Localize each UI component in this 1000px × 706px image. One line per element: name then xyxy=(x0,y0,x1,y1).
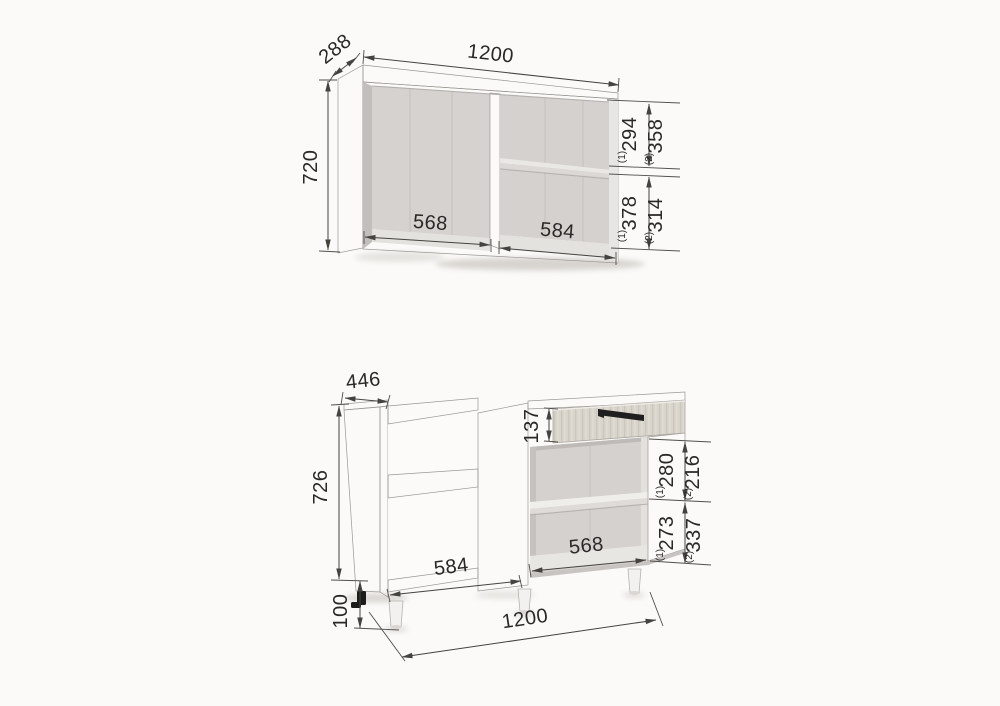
base-depth-value: 446 xyxy=(345,368,382,394)
base-lower-option2-value: 337 xyxy=(683,518,705,553)
wall-left-opening-value: 568 xyxy=(412,211,448,235)
base-drawer-height-value: 137 xyxy=(521,409,543,444)
base-legs-height-value: 100 xyxy=(330,594,352,629)
base-upper-option1-value: 280 xyxy=(656,453,678,488)
wall-upper-option2-value: 358 xyxy=(645,119,667,154)
wall-upper-option1-value: 294 xyxy=(619,117,641,152)
cabinet-leg xyxy=(389,601,403,629)
base-left-opening-value: 584 xyxy=(433,554,470,580)
wall-upper-option2-mark: (2) xyxy=(644,153,655,165)
drawing-canvas: 288 1200 720 568 584 xyxy=(0,0,1000,706)
wall-height-value: 720 xyxy=(300,150,322,185)
base-height-value: 726 xyxy=(310,470,332,505)
wall-lower-option1-value: 378 xyxy=(619,196,641,231)
base-right-opening-value: 568 xyxy=(568,533,605,559)
wall-right-opening-value: 584 xyxy=(539,219,576,244)
wall-lower-option2-value: 314 xyxy=(645,198,667,233)
base-upper-option2-value: 216 xyxy=(682,455,704,490)
wall-upper-option1-mark: (1) xyxy=(617,151,628,163)
wall-inner-left-wall xyxy=(363,82,372,249)
wall-lower-option1-mark: (1) xyxy=(617,230,628,242)
base-lower-option1-value: 273 xyxy=(656,516,678,551)
wall-lower-option2-mark: (2) xyxy=(644,232,655,244)
cabinet-leg xyxy=(628,569,641,595)
base-compartment-right-wall xyxy=(641,437,648,547)
furniture-dimension-drawing: 288 1200 720 568 584 xyxy=(0,0,1000,706)
